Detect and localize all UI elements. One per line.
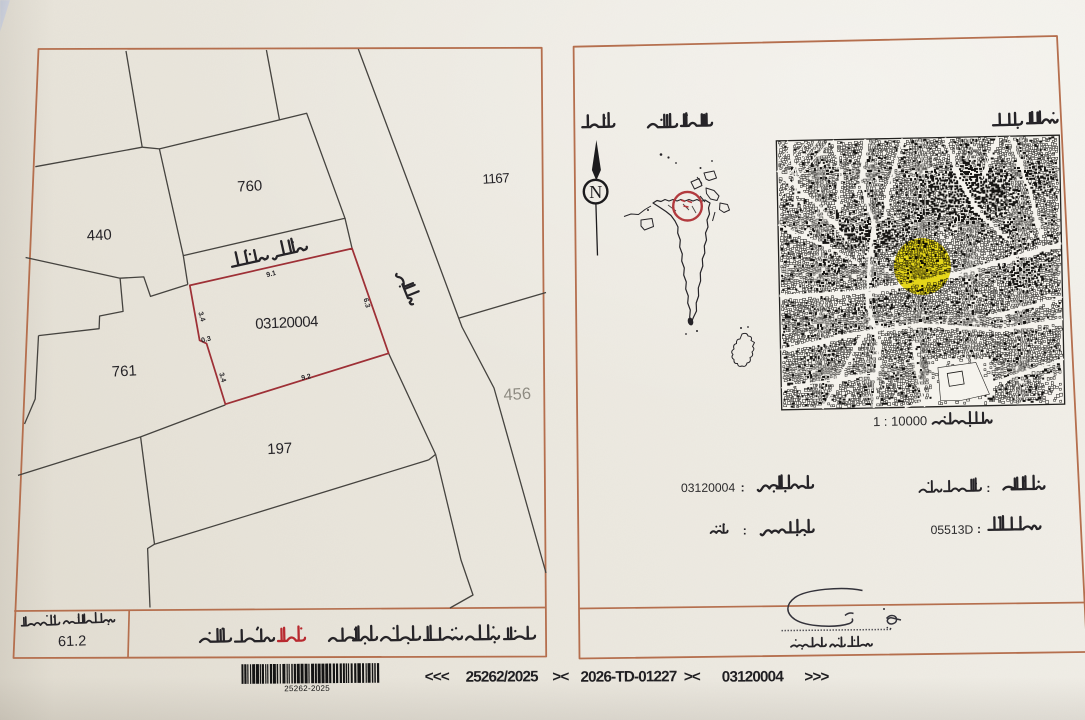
svg-text:456: 456	[503, 385, 531, 404]
svg-text:05513D: 05513D	[931, 523, 974, 537]
svg-text:760: 760	[237, 177, 263, 195]
svg-text:197: 197	[267, 440, 293, 458]
svg-text::: :	[977, 522, 981, 536]
svg-text:1167: 1167	[482, 170, 509, 186]
svg-text:<<<: <<<	[425, 668, 450, 685]
svg-text:03120004: 03120004	[722, 668, 785, 685]
svg-text:03120004: 03120004	[681, 481, 736, 495]
svg-text:><: ><	[552, 668, 569, 685]
svg-text:1 : 10000: 1 : 10000	[873, 413, 927, 429]
svg-text:2026-TD-01227: 2026-TD-01227	[580, 668, 676, 686]
svg-text:761: 761	[111, 362, 137, 380]
svg-text:03120004: 03120004	[255, 313, 319, 333]
svg-text::: :	[741, 481, 745, 495]
svg-text:61.2: 61.2	[58, 633, 87, 650]
svg-text:>>>: >>>	[804, 668, 829, 685]
svg-text::: :	[986, 481, 990, 495]
svg-text:N: N	[589, 182, 602, 202]
svg-text:25262-2025: 25262-2025	[284, 684, 330, 693]
svg-text::: :	[743, 524, 747, 538]
svg-text:440: 440	[86, 226, 112, 244]
svg-text:25262/2025: 25262/2025	[466, 668, 540, 685]
svg-text:><: ><	[684, 668, 701, 685]
